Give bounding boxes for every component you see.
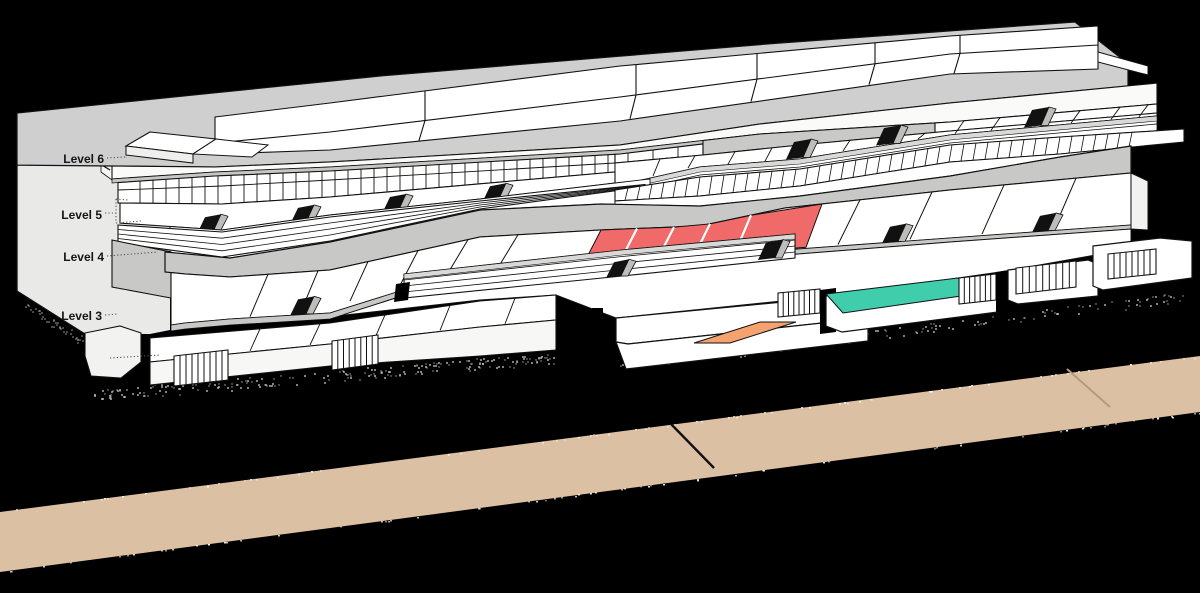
svg-text:Level 3: Level 3 <box>61 309 102 323</box>
svg-text:Level 5: Level 5 <box>61 208 102 222</box>
svg-text:Level 4: Level 4 <box>63 250 104 264</box>
svg-text:Level 6: Level 6 <box>63 152 104 166</box>
